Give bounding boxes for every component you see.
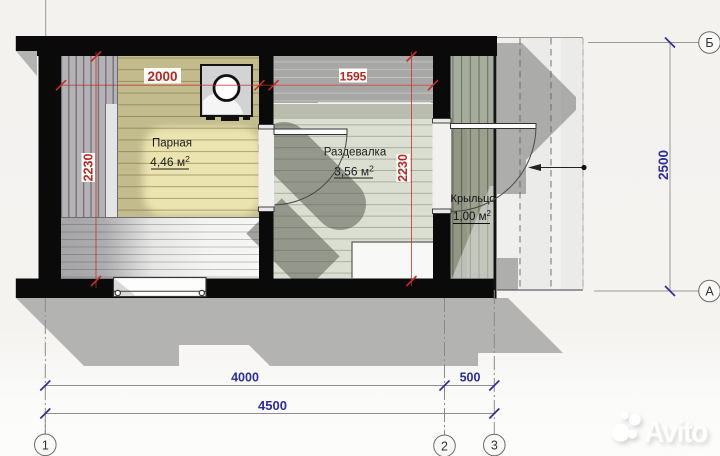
svg-text:Б: Б [705,36,713,50]
svg-text:Крыльцо: Крыльцо [451,193,496,205]
svg-text:1595: 1595 [340,70,367,84]
svg-text:4500: 4500 [258,398,287,413]
svg-text:4,46 м2: 4,46 м2 [150,154,190,169]
svg-text:2: 2 [441,439,448,453]
svg-text:2230: 2230 [82,154,96,182]
svg-text:А: А [705,285,714,299]
svg-text:500: 500 [460,371,481,385]
svg-text:2500: 2500 [656,150,671,180]
svg-text:3: 3 [491,439,498,453]
svg-text:4000: 4000 [231,371,259,385]
svg-text:2230: 2230 [396,154,410,182]
svg-text:Avito: Avito [644,414,708,449]
svg-text:2000: 2000 [147,69,177,84]
svg-text:Раздевалка: Раздевалка [324,147,387,159]
svg-text:3,56 м2: 3,56 м2 [334,164,374,179]
svg-text:1: 1 [42,438,49,452]
svg-text:Парная: Парная [152,138,192,150]
